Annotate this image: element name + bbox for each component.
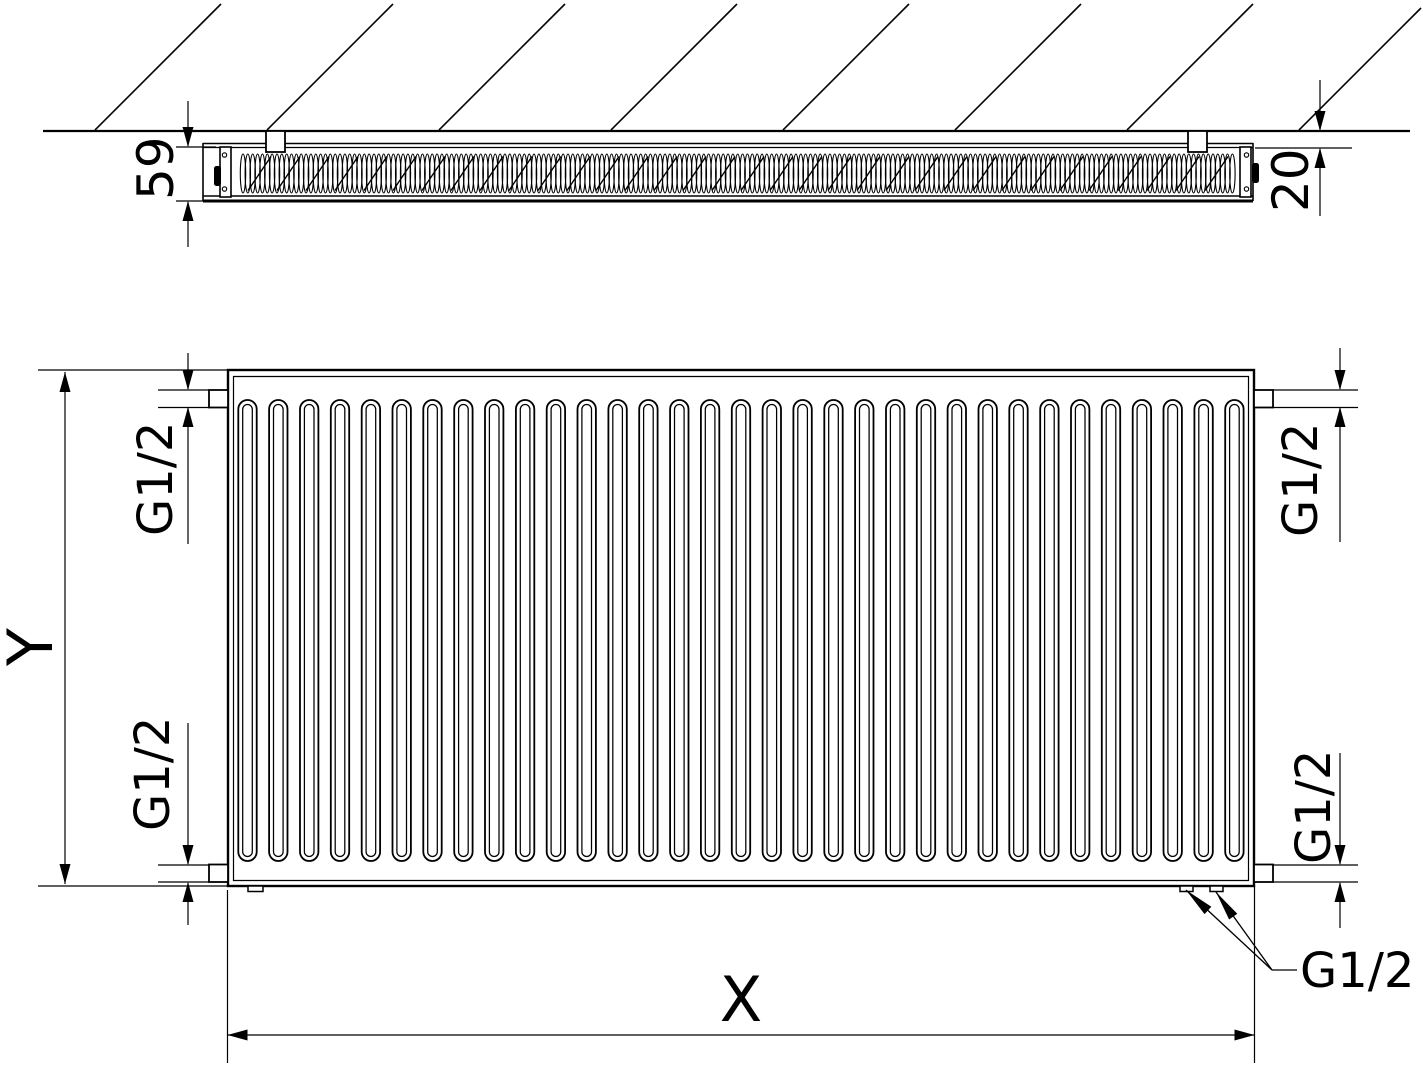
connection-stub-bottom-right (1254, 865, 1273, 883)
thread-label: G1/2 (1286, 750, 1342, 864)
thread-label: G1/2 (125, 717, 181, 831)
height-value: Y (0, 628, 67, 667)
diagram-canvas: 59 20 Y (0, 0, 1423, 1069)
thread-label: G1/2 (128, 422, 184, 536)
side-plug-left (214, 166, 221, 186)
connection-stub-top-right (1254, 390, 1273, 408)
connection-stub-bottom-left (209, 865, 228, 883)
width-value: X (720, 963, 762, 1036)
screw-dot (222, 153, 226, 157)
depth-value: 59 (127, 136, 185, 200)
wall-bracket-left (266, 131, 285, 152)
screw-dot (1244, 187, 1248, 191)
connection-stub-top-left (209, 390, 228, 408)
thread-label: G1/2 (1273, 423, 1329, 537)
thread-label: G1/2 (1300, 943, 1414, 999)
bottom-connection-tab (1210, 886, 1223, 892)
wall-gap-value: 20 (1262, 148, 1320, 212)
side-plug-right (1252, 163, 1259, 183)
screw-dot (222, 187, 226, 191)
wall-bracket-right (1188, 131, 1207, 152)
radiator-panel-outline (228, 370, 1254, 886)
radiator-technical-drawing: 59 20 Y (0, 0, 1423, 1069)
bottom-foot-tab (248, 886, 263, 892)
screw-dot (1244, 153, 1248, 157)
